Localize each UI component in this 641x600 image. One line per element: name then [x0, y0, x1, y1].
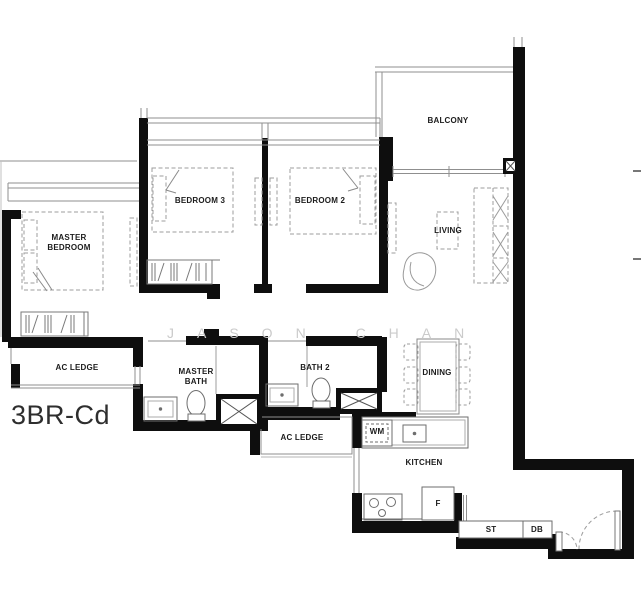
master-bath-label-line2: BATH [179, 377, 214, 387]
balcony-sliding-door [393, 166, 505, 177]
living-label: LIVING [434, 226, 462, 236]
master-bedroom-label-line2: BEDROOM [47, 243, 90, 253]
master-bedroom-label: MASTER BEDROOM [47, 233, 90, 253]
bath2-label: BATH 2 [300, 363, 330, 373]
entrance-door [556, 511, 620, 551]
shaft-bath2-icon [336, 388, 382, 414]
floor-plan: BALCONY BEDROOM 3 BEDROOM 2 MASTER BEDRO… [0, 0, 641, 600]
bath2-toilet-icon [312, 378, 330, 408]
watermark-text: JASON CHAN [167, 325, 487, 341]
master-bath-label-line1: MASTER [179, 367, 214, 377]
bedroom2-label: BEDROOM 2 [295, 196, 345, 206]
kitchen-label: KITCHEN [406, 458, 443, 468]
walls [2, 47, 634, 559]
balcony-label: BALCONY [428, 116, 469, 126]
ac-ledge-right-label: AC LEDGE [281, 433, 324, 443]
door-leaf-main [615, 511, 620, 550]
shaft-master-bath-icon [216, 394, 262, 429]
storage-label: ST [486, 525, 497, 535]
master-bath-label: MASTER BATH [179, 367, 214, 387]
bath2-fixtures [266, 346, 330, 408]
bedroom3-wardrobe [147, 260, 220, 284]
stove-icon [362, 494, 422, 520]
unit-type-label: 3BR-Cd [11, 400, 110, 431]
db-label: DB [531, 525, 543, 535]
ac-ledge-left-label: AC LEDGE [56, 363, 99, 373]
bath2-sink-icon [266, 384, 298, 406]
fridge-label: F [435, 499, 440, 509]
balcony-column-icon [503, 158, 518, 174]
door-leaf-small [556, 532, 562, 551]
master-bath-sink-icon [144, 397, 177, 421]
master-bedroom-wardrobe [21, 312, 88, 336]
dining-label: DINING [422, 368, 451, 378]
living-furniture [388, 188, 508, 290]
master-bath-toilet-icon [187, 391, 205, 422]
floor-plan-drawing [0, 0, 641, 600]
window-lines [0, 37, 641, 521]
washing-machine-label: WM [370, 427, 385, 437]
master-bedroom-label-line1: MASTER [47, 233, 90, 243]
bedroom3-label: BEDROOM 3 [175, 196, 225, 206]
